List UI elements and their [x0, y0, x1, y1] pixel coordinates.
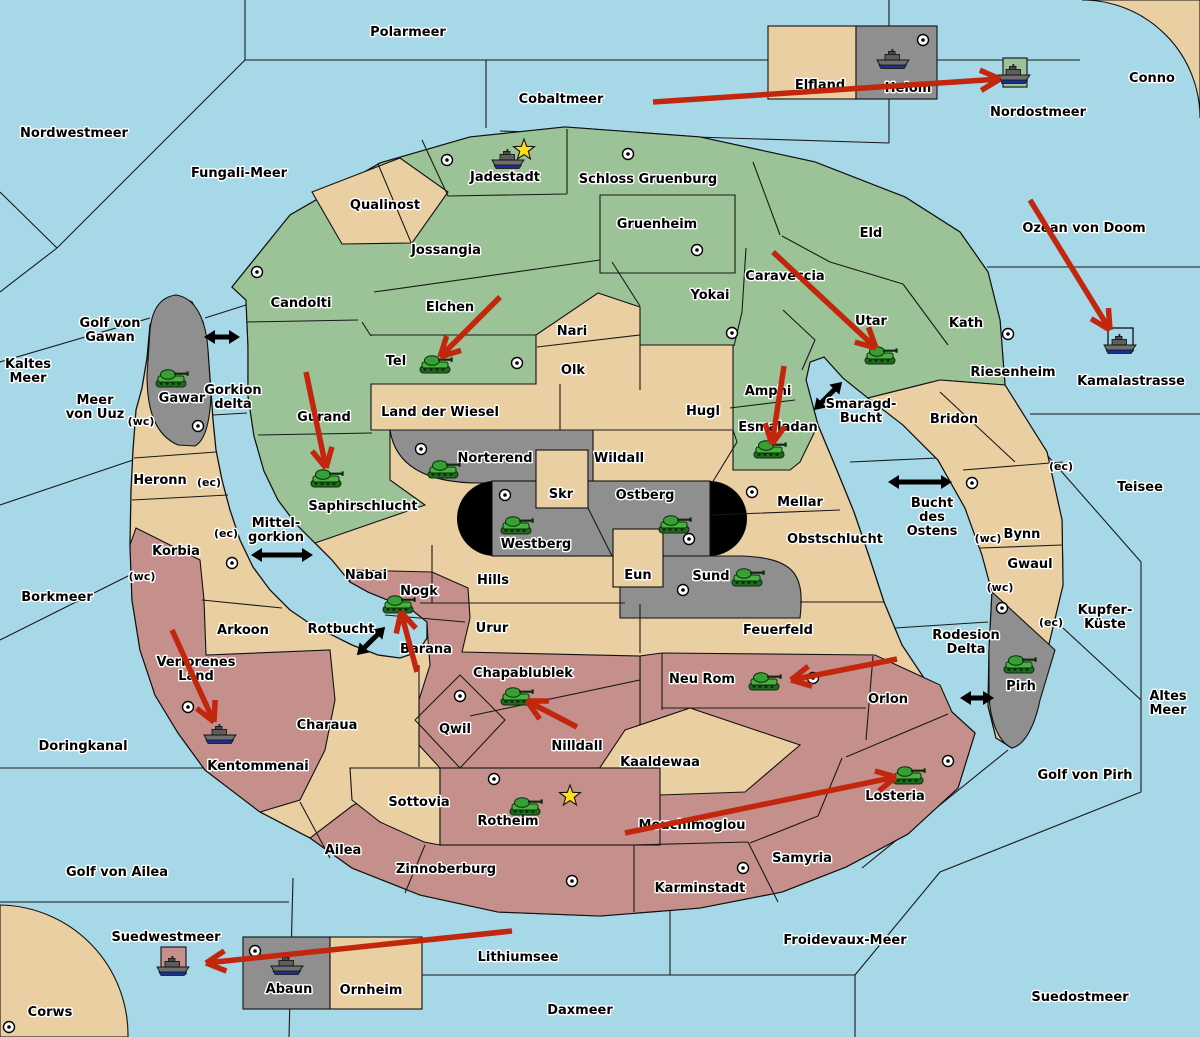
coast-marker-ec-5: (ec)	[1049, 460, 1073, 473]
sea-label-mittel-gorkion[interactable]: Mittel-gorkion	[248, 516, 304, 545]
territory-label-qwil[interactable]: Qwil	[439, 722, 471, 737]
territory-label-nilldall[interactable]: Nilldall	[551, 739, 602, 754]
city-dot-icon	[416, 444, 427, 455]
territory-label-gurand[interactable]: Gurand	[297, 410, 351, 425]
territory-label-bridon[interactable]: Bridon	[930, 412, 978, 427]
territory-label-jossangia[interactable]: Jossangia	[410, 243, 481, 258]
city-dot-icon	[4, 1022, 15, 1033]
territory-label-jadestadt[interactable]: Jadestadt	[469, 170, 540, 185]
territory-label-kaaldewaa[interactable]: Kaaldewaa	[620, 755, 700, 770]
territory-label-ostberg[interactable]: Ostberg	[616, 488, 675, 503]
territory-label-nari[interactable]: Nari	[557, 324, 588, 339]
sea-label-daxmeer[interactable]: Daxmeer	[547, 1003, 613, 1018]
territory-label-qualinost[interactable]: Qualinost	[350, 198, 420, 213]
sea-label-conno[interactable]: Conno	[1129, 71, 1175, 86]
sea-label-golf-von-pirh[interactable]: Golf von Pirh	[1037, 768, 1132, 783]
city-dot-icon	[183, 702, 194, 713]
city-dot-icon	[967, 478, 978, 489]
city-dot-icon	[738, 863, 749, 874]
sea-label-teisee[interactable]: Teisee	[1117, 480, 1163, 495]
territory-label-gruenheim[interactable]: Gruenheim	[617, 217, 697, 232]
sea-label-froidevaux-meer[interactable]: Froidevaux-Meer	[783, 933, 907, 948]
territory-label-sund[interactable]: Sund	[692, 569, 729, 584]
territory-label-samyria[interactable]: Samyria	[772, 851, 832, 866]
territory-label-wildall[interactable]: Wildall	[594, 451, 644, 466]
territory-label-obstschlucht[interactable]: Obstschlucht	[787, 532, 883, 547]
territory-label-nabai[interactable]: Nabai	[345, 568, 387, 583]
city-dot-icon	[512, 358, 523, 369]
territory-label-pirh[interactable]: Pirh	[1006, 679, 1036, 694]
city-dot-icon	[500, 490, 511, 501]
territory-label-eld[interactable]: Eld	[860, 226, 883, 241]
sea-label-ozean-von-doom[interactable]: Ozean von Doom	[1022, 221, 1145, 236]
territory-label-ailea[interactable]: Ailea	[325, 843, 362, 858]
city-dot-icon	[227, 558, 238, 569]
territory-label-neu-rom[interactable]: Neu Rom	[669, 672, 735, 687]
coast-marker-wc-4: (wc)	[129, 570, 156, 583]
territory-label-yokai[interactable]: Yokai	[689, 288, 729, 303]
territory-label-eun[interactable]: Eun	[624, 568, 651, 583]
sea-label-fungali-meer[interactable]: Fungali-Meer	[191, 166, 288, 181]
territory-label-arkoon[interactable]: Arkoon	[217, 623, 269, 638]
territory-label-charaua[interactable]: Charaua	[297, 718, 358, 733]
sea-label-cobaltmeer[interactable]: Cobaltmeer	[519, 92, 604, 107]
territory-label-norterend[interactable]: Norterend	[457, 451, 532, 466]
territory-label-urur[interactable]: Urur	[476, 621, 509, 636]
territory-label-gwaul[interactable]: Gwaul	[1007, 557, 1052, 572]
territory-label-ornheim[interactable]: Ornheim	[340, 983, 403, 998]
sea-label-corws[interactable]: Corws	[28, 1005, 73, 1020]
territory-label-karminstadt[interactable]: Karminstadt	[655, 881, 746, 896]
sea-label-suedwestmeer[interactable]: Suedwestmeer	[111, 930, 221, 945]
coast-marker-ec-3: (ec)	[214, 527, 238, 540]
city-dot-icon	[567, 876, 578, 887]
territory-label-westberg[interactable]: Westberg	[501, 537, 571, 552]
sea-label-altes-meer[interactable]: AltesMeer	[1149, 689, 1187, 718]
territory-label-kath[interactable]: Kath	[949, 316, 983, 331]
city-dot-icon	[442, 155, 453, 166]
territory-label-abaun[interactable]: Abaun	[266, 982, 313, 997]
coast-marker-wc-7: (wc)	[987, 581, 1014, 594]
sea-label-kupfer-k-ste[interactable]: Kupfer-Küste	[1078, 603, 1133, 632]
territory-label-riesenheim[interactable]: Riesenheim	[970, 365, 1055, 380]
city-dot-icon	[918, 35, 929, 46]
territory-label-orlon[interactable]: Orlon	[868, 692, 908, 707]
city-dot-icon	[943, 756, 954, 767]
sea-label-kaltes-meer[interactable]: KaltesMeer	[5, 357, 51, 386]
territory-label-gawar[interactable]: Gawar	[159, 391, 206, 406]
city-dot-icon	[684, 534, 695, 545]
sea-label-golf-von-ailea[interactable]: Golf von Ailea	[66, 865, 168, 880]
territory-label-nogk[interactable]: Nogk	[400, 584, 438, 599]
territory-label-land-der-wiesel[interactable]: Land der Wiesel	[381, 405, 499, 420]
coast-marker-wc-1: (wc)	[128, 415, 155, 428]
city-dot-icon	[455, 691, 466, 702]
territory-label-schloss-gruenburg[interactable]: Schloss Gruenburg	[579, 172, 717, 187]
territory-label-feuerfeld[interactable]: Feuerfeld	[743, 623, 813, 638]
sea-label-lithiumsee[interactable]: Lithiumsee	[478, 950, 559, 965]
territory-label-sottovia[interactable]: Sottovia	[388, 795, 449, 810]
territory-label-olk[interactable]: Olk	[561, 363, 586, 378]
coast-marker-ec-8: (ec)	[1039, 616, 1063, 629]
sea-label-doringkanal[interactable]: Doringkanal	[38, 739, 127, 754]
territory-label-caraveccia[interactable]: Caraveccia	[745, 269, 824, 284]
territory-label-chapablublek[interactable]: Chapablublek	[473, 666, 573, 681]
city-dot-icon	[727, 328, 738, 339]
sea-label-borkmeer[interactable]: Borkmeer	[21, 590, 93, 605]
coast-marker-wc-6: (wc)	[975, 532, 1002, 545]
territory-label-korbia[interactable]: Korbia	[152, 544, 200, 559]
city-dot-icon	[193, 421, 204, 432]
sea-label-nordostmeer[interactable]: Nordostmeer	[990, 105, 1087, 120]
sea-label-polarmeer[interactable]: Polarmeer	[370, 25, 446, 40]
territory-label-hugl[interactable]: Hugl	[686, 404, 720, 419]
city-dot-icon	[997, 603, 1008, 614]
city-dot-icon	[623, 149, 634, 160]
sea-label-suedostmeer[interactable]: Suedostmeer	[1031, 990, 1129, 1005]
territory-label-rotheim[interactable]: Rotheim	[477, 814, 538, 829]
territory-label-elchen[interactable]: Elchen	[426, 300, 474, 315]
city-dot-icon	[747, 487, 758, 498]
territory-label-candolti[interactable]: Candolti	[271, 296, 332, 311]
territory-label-mellar[interactable]: Mellar	[777, 495, 823, 510]
territory-label-zinnoberburg[interactable]: Zinnoberburg	[396, 862, 496, 877]
sea-label-golf-von-gawan[interactable]: Golf vonGawan	[80, 316, 141, 345]
game-map: PolarmeerNordwestmeerFungali-MeerCobaltm…	[0, 0, 1200, 1037]
territory-label-heronn[interactable]: Heronn	[133, 473, 187, 488]
city-dot-icon	[1003, 329, 1014, 340]
city-dot-icon	[489, 774, 500, 785]
city-dot-icon	[678, 585, 689, 596]
sea-label-kamalastrasse[interactable]: Kamalastrasse	[1077, 374, 1185, 389]
territory-label-bynn[interactable]: Bynn	[1004, 527, 1041, 542]
territory-label-tel[interactable]: Tel	[386, 354, 406, 369]
sea-label-rotbucht[interactable]: Rotbucht	[308, 622, 375, 637]
territory-label-amphi[interactable]: Amphi	[745, 384, 792, 399]
territory-label-losteria[interactable]: Losteria	[865, 789, 925, 804]
city-dot-icon	[692, 245, 703, 256]
territory-label-saphirschlucht[interactable]: Saphirschlucht	[308, 499, 417, 514]
territory-label-skr[interactable]: Skr	[549, 487, 574, 502]
territory-label-hills[interactable]: Hills	[477, 573, 509, 588]
territory-label-kentommenai[interactable]: Kentommenai	[207, 759, 308, 774]
city-dot-icon	[252, 267, 263, 278]
coast-marker-ec-2: (ec)	[197, 476, 221, 489]
sea-label-nordwestmeer[interactable]: Nordwestmeer	[20, 126, 128, 141]
